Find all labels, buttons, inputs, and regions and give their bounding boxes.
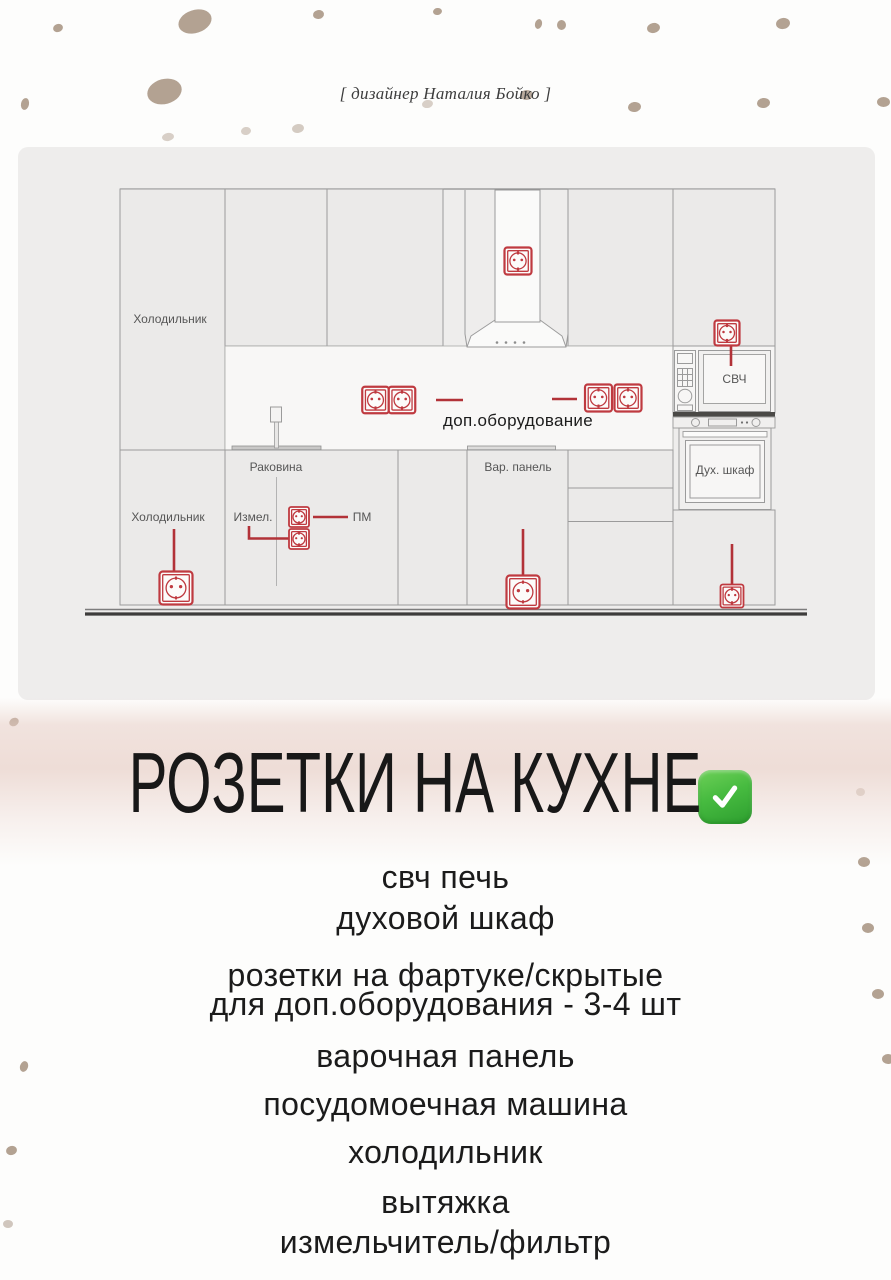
decor-dot xyxy=(646,22,661,34)
outlet-icon xyxy=(505,248,532,275)
label-fridge-upper: Холодильник xyxy=(133,312,207,326)
decor-dot xyxy=(175,5,214,37)
outlet-icon xyxy=(362,387,389,414)
check-icon xyxy=(698,770,752,824)
label-fridge-lower: Холодильник xyxy=(131,510,205,524)
decor-dot xyxy=(557,20,566,30)
kitchen-elevation-drawing: Холодильник Холодильник Раковина Измел. … xyxy=(18,147,875,700)
label-oven: Дух. шкаф xyxy=(696,463,755,477)
outlet-icon xyxy=(160,572,193,605)
wall-cabinet-1 xyxy=(225,189,327,346)
list-item: посудомоечная машина xyxy=(0,1084,891,1124)
list-item: вытяжка xyxy=(0,1182,891,1222)
decor-dot xyxy=(432,7,442,15)
list-item: варочная панель xyxy=(0,1036,891,1076)
outlet-icon xyxy=(615,385,642,412)
list-item: измельчитель/фильтр xyxy=(0,1222,891,1262)
title-row: РОЗЕТКИ НА КУХНЕ xyxy=(0,740,891,826)
outlet-icon xyxy=(289,529,309,549)
outlet-icon xyxy=(721,585,744,608)
decor-dot xyxy=(8,716,21,728)
cabinet-dishwasher xyxy=(398,450,467,605)
oven-top-band xyxy=(673,412,775,417)
decor-dot xyxy=(291,123,304,134)
decor-dot xyxy=(533,18,542,29)
list-item: духовой шкаф xyxy=(0,898,891,938)
list-item: для доп.оборудования - 3-4 шт xyxy=(0,984,891,1024)
outlet-icon xyxy=(507,576,540,609)
decor-dot xyxy=(775,16,791,29)
outlet-icon xyxy=(715,321,740,346)
label-sink: Раковина xyxy=(250,460,303,474)
label-cooktop: Вар. панель xyxy=(484,460,551,474)
label-dishwasher: ПМ xyxy=(353,510,372,524)
page-title: РОЗЕТКИ НА КУХНЕ xyxy=(129,741,702,826)
list-item: свч печь xyxy=(0,857,891,897)
outlet-icon xyxy=(289,507,309,527)
kitchen-elevation-panel: Холодильник Холодильник Раковина Измел. … xyxy=(18,147,875,700)
outlet-icon xyxy=(389,387,416,414)
cooktop-slab xyxy=(468,446,556,450)
label-extra-equipment: доп.оборудование xyxy=(443,411,593,430)
outlet-icon xyxy=(585,385,612,412)
decor-dot xyxy=(52,23,64,34)
list-item: холодильник xyxy=(0,1132,891,1172)
wall-cabinet-2 xyxy=(327,189,443,346)
label-microwave: СВЧ xyxy=(722,372,746,386)
small-appliance-panel-icon xyxy=(675,351,696,412)
decor-dot xyxy=(312,9,324,20)
wall-cabinet-3 xyxy=(568,189,673,346)
cabinet-drawers xyxy=(568,450,673,605)
decor-dot xyxy=(240,126,251,136)
decor-dot xyxy=(161,132,174,142)
infographic-page: [ дизайнер Наталия Бойко ] xyxy=(0,0,891,1280)
label-grinder: Измел. xyxy=(234,510,273,524)
designer-credit: [ дизайнер Наталия Бойко ] xyxy=(0,84,891,104)
